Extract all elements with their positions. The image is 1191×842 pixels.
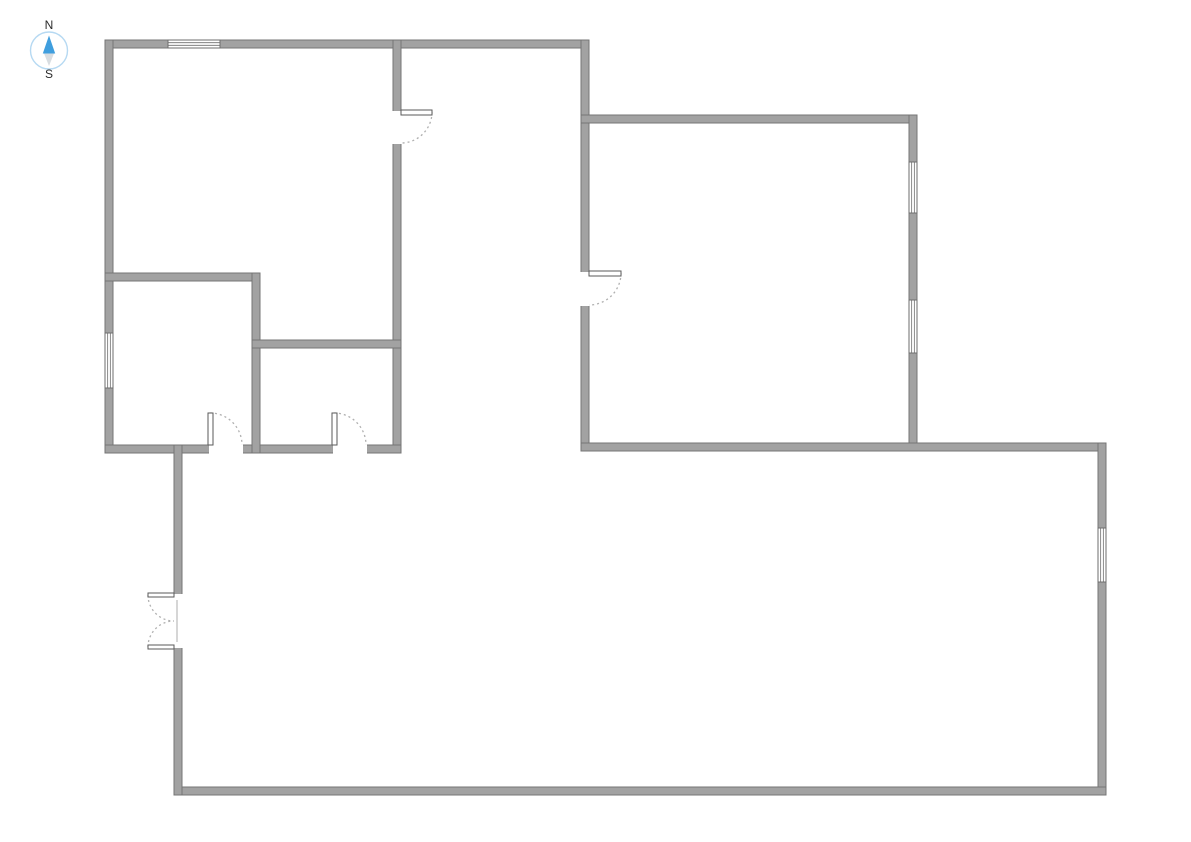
window-left-wall: [105, 333, 113, 388]
window-top-wall: [168, 40, 220, 48]
window-right-room-lower: [909, 300, 917, 353]
compass-needle-south-icon: [44, 54, 54, 67]
wall-bottom-room-top: [581, 443, 1106, 451]
floor-plan-canvas: N S: [0, 0, 1191, 842]
double-door-entry-leaf-2: [148, 645, 174, 649]
door-small-room-left-leaf-1: [208, 413, 213, 445]
wall-right-room-left: [581, 40, 589, 451]
door-small-room-mid-leaf-1: [332, 413, 337, 445]
double-door-entry-leaf-1: [148, 593, 174, 597]
door-right-room-swing-arc-1: [589, 273, 621, 305]
walls-layer: [105, 40, 1106, 795]
compass-south-label: S: [45, 67, 53, 81]
wall-outer-left: [105, 40, 113, 453]
compass-north-label: N: [45, 18, 54, 32]
door-left-section-opening: [392, 111, 402, 144]
wall-left-section-right: [393, 40, 401, 453]
window-bottom-room-right: [1098, 528, 1106, 582]
door-small-room-left-opening: [209, 444, 243, 454]
door-small-room-mid-opening: [333, 444, 367, 454]
double-door-entry-swing-arc-1: [148, 595, 174, 621]
door-right-room-opening: [580, 272, 590, 306]
door-left-section-leaf-1: [401, 110, 432, 115]
wall-right-room-top: [581, 115, 917, 123]
double-door-entry-swing-arc-2: [148, 621, 174, 647]
wall-interior-horizontal-upper: [105, 273, 260, 281]
wall-interior-vertical: [252, 273, 260, 453]
wall-bottom-room-bottom: [174, 787, 1106, 795]
door-small-room-mid-swing-arc-1: [334, 413, 366, 445]
window-right-room-upper: [909, 162, 917, 213]
double-door-entry-opening: [173, 594, 183, 648]
door-small-room-left-swing-arc-1: [210, 413, 242, 445]
wall-bottom-room-right: [1098, 443, 1106, 795]
door-left-section-swing-arc-1: [401, 112, 432, 143]
floor-plan-page: N S: [0, 0, 1191, 842]
compass-rose: N S: [31, 18, 68, 81]
wall-interior-horizontal-lower: [252, 340, 401, 348]
door-right-room-leaf-1: [589, 271, 621, 276]
compass-needle-north-icon: [43, 36, 55, 54]
